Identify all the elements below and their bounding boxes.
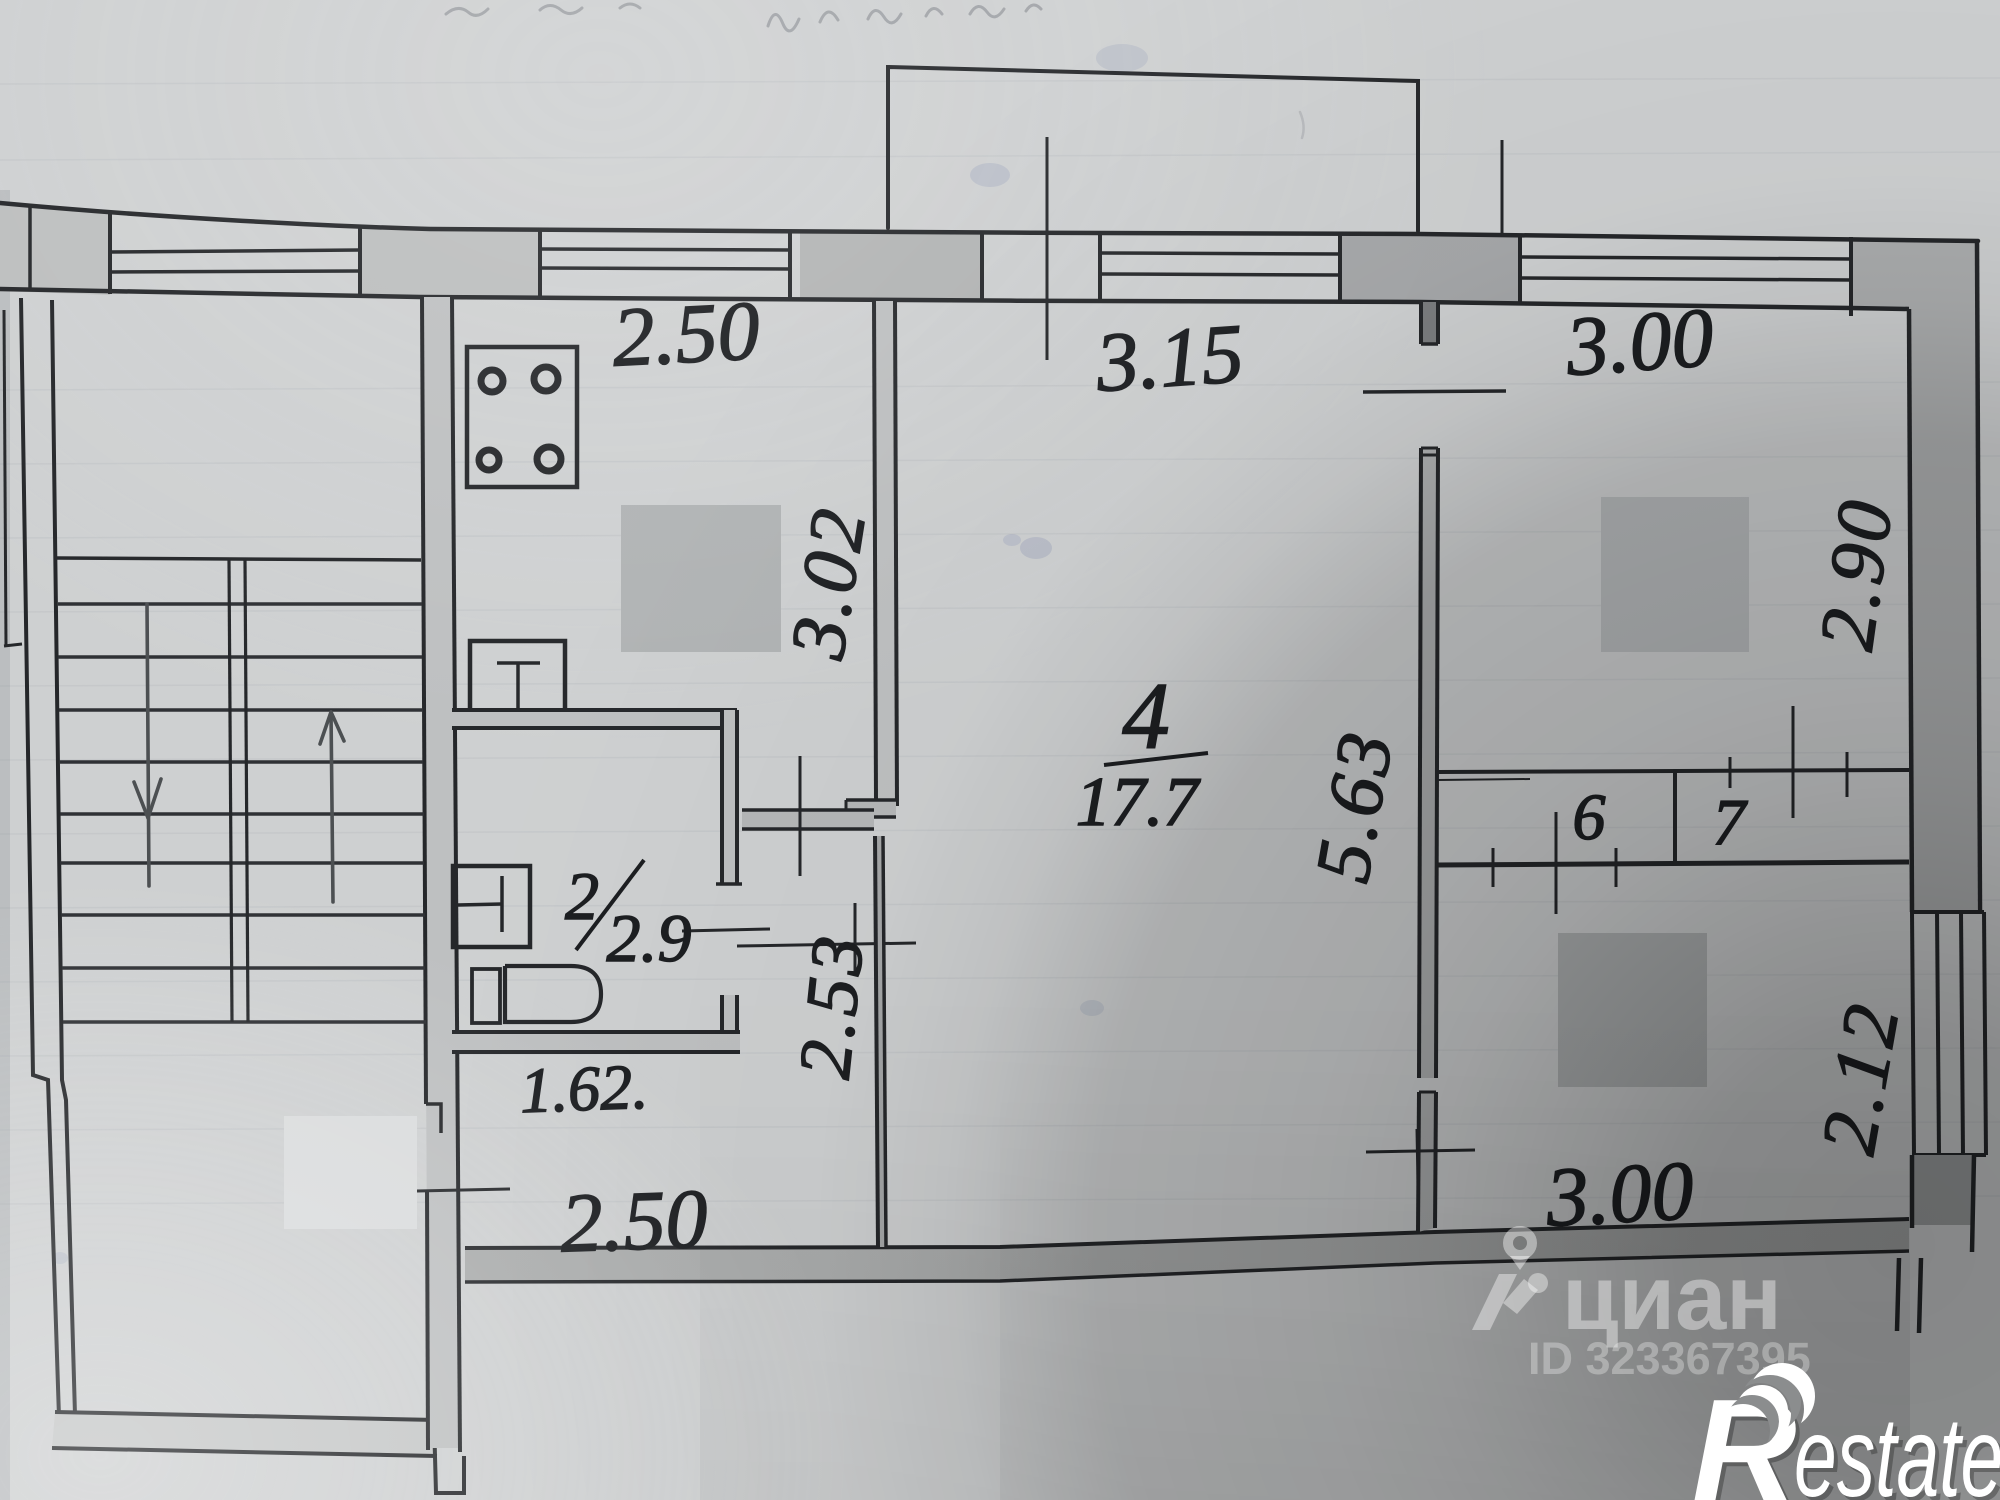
svg-text:estate: estate bbox=[1794, 1395, 2000, 1500]
